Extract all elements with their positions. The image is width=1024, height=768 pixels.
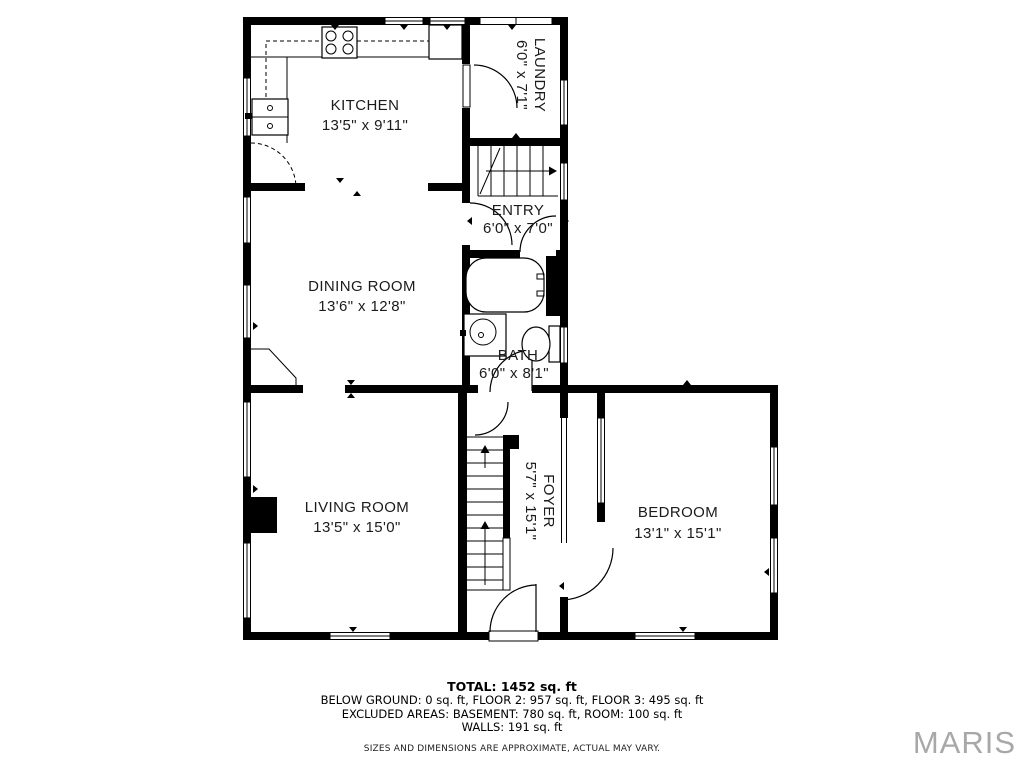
bath-dims: 6'0" x 8'1"	[479, 365, 549, 382]
foyer-dims: 5'7" x 15'1"	[522, 462, 539, 541]
refrigerator	[429, 25, 462, 59]
entry-dims: 6'0" x 7'0"	[483, 220, 553, 237]
bath-label: BATH	[498, 347, 539, 364]
bedroom-label: BEDROOM	[638, 504, 718, 521]
dining-dims: 13'6" x 12'8"	[318, 298, 405, 315]
bathtub	[466, 258, 544, 312]
door-threshold	[489, 631, 538, 641]
walls-area: WALLS: 191 sq. ft	[0, 721, 1024, 735]
bedroom-dims: 13'1" x 15'1"	[634, 525, 721, 542]
excluded-area: EXCLUDED AREAS: BASEMENT: 780 sq. ft, RO…	[0, 708, 1024, 722]
door-swing-arc	[490, 585, 536, 632]
area-summary: TOTAL: 1452 sq. ft BELOW GROUND: 0 sq. f…	[0, 680, 1024, 754]
living-label: LIVING ROOM	[305, 499, 409, 516]
living-dims: 13'5" x 15'0"	[313, 519, 400, 536]
kitchen-label: KITCHEN	[331, 97, 400, 114]
entry-label: ENTRY	[492, 202, 545, 219]
stove	[322, 27, 357, 58]
laundry-dims: 6'0" x 7'1"	[513, 40, 530, 110]
stairs-upper	[478, 146, 558, 196]
dining-corner-feature	[251, 349, 296, 386]
door-swing-arc	[475, 402, 508, 435]
floors-area: BELOW GROUND: 0 sq. ft, FLOOR 2: 957 sq.…	[0, 694, 1024, 708]
door-leaf	[463, 65, 470, 107]
laundry-label: LAUNDRY	[531, 38, 548, 112]
door-swing-arc	[561, 548, 613, 600]
disclaimer: SIZES AND DIMENSIONS ARE APPROXIMATE, AC…	[0, 744, 1024, 754]
floor-plan: KITCHEN 13'5" x 9'11" LAUNDRY 6'0" x 7'1…	[0, 0, 1024, 768]
maris-watermark: MARIS	[913, 725, 1016, 761]
corner-cabinet	[251, 143, 296, 188]
dining-label: DINING ROOM	[308, 278, 416, 295]
total-area: TOTAL: 1452 sq. ft	[0, 680, 1024, 694]
kitchen-sink	[245, 99, 288, 135]
fireplace	[251, 497, 277, 533]
kitchen-dims: 13'5" x 9'11"	[322, 117, 408, 134]
foyer-label: FOYER	[540, 474, 557, 528]
door-swing-arc	[474, 65, 517, 108]
